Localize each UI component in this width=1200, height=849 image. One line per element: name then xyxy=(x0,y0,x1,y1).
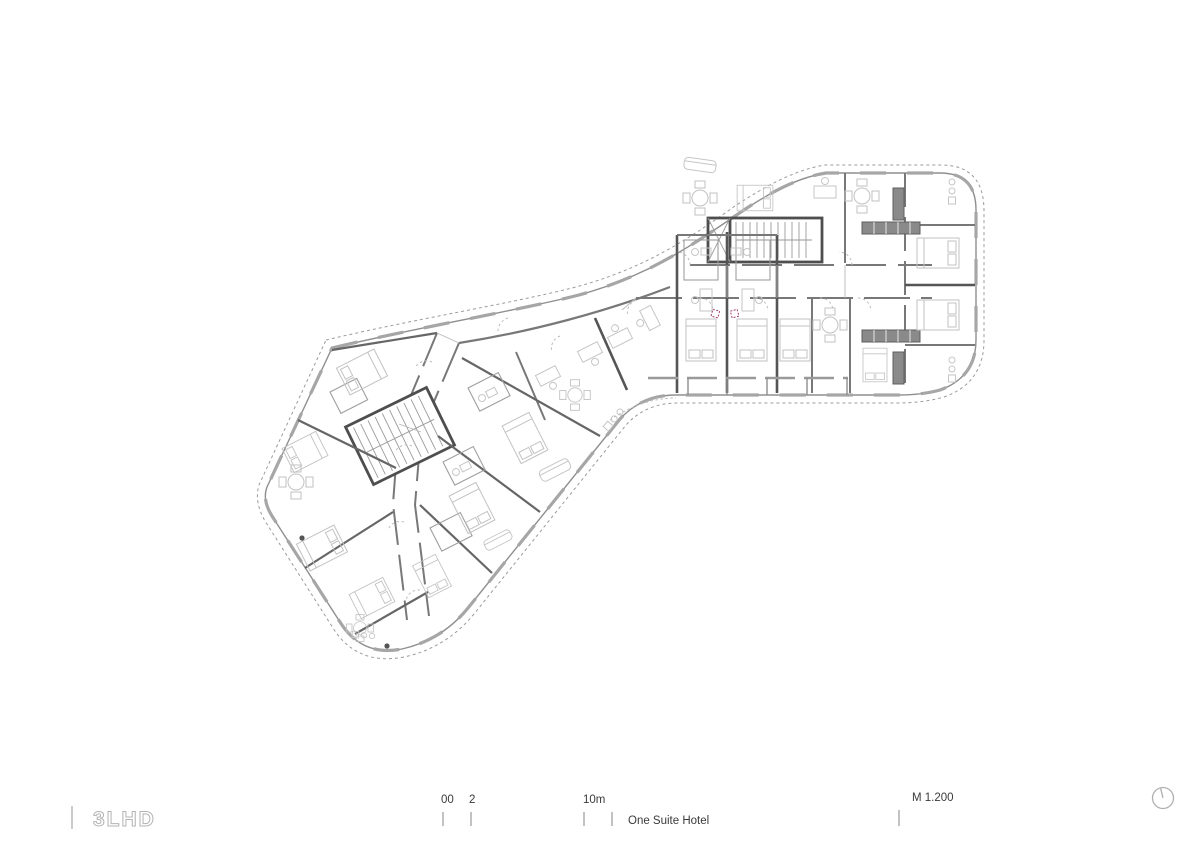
drawing-scale: M 1.200 xyxy=(912,792,954,804)
scale-bar-ticks xyxy=(443,812,612,826)
north-arrow-icon xyxy=(1153,788,1174,809)
company-logo: 3LHD xyxy=(93,808,156,831)
scale-label-two: 2 xyxy=(469,794,475,806)
project-name: One Suite Hotel xyxy=(628,815,709,827)
title-block: 3LHD 00 2 10m One Suite Hotel M 1.200 xyxy=(0,0,1200,849)
scale-label-ten: 10m xyxy=(583,794,605,806)
drawing-sheet: 3LHD 00 2 10m One Suite Hotel M 1.200 xyxy=(0,0,1200,849)
scale-label-zero: 00 xyxy=(441,794,454,806)
